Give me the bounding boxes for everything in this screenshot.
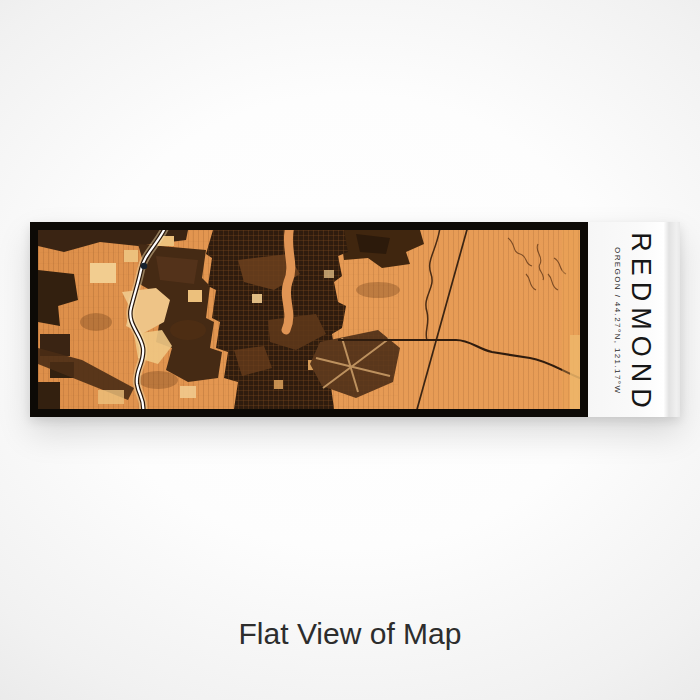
view-caption: Flat View of Map (0, 612, 700, 656)
label-panel: REDMOND OREGON / 44.27°N, 121.17°W (588, 222, 680, 417)
map-title: REDMOND (626, 226, 656, 414)
label-text-rotated: REDMOND OREGON / 44.27°N, 121.17°W (588, 222, 680, 417)
product-photo: REDMOND OREGON / 44.27°N, 121.17°W Flat … (0, 0, 700, 700)
map-subtitle: OREGON / 44.27°N, 121.17°W (613, 245, 622, 394)
map-canvas (38, 230, 580, 409)
map-print: REDMOND OREGON / 44.27°N, 121.17°W (30, 222, 680, 417)
map-frame (30, 222, 588, 417)
